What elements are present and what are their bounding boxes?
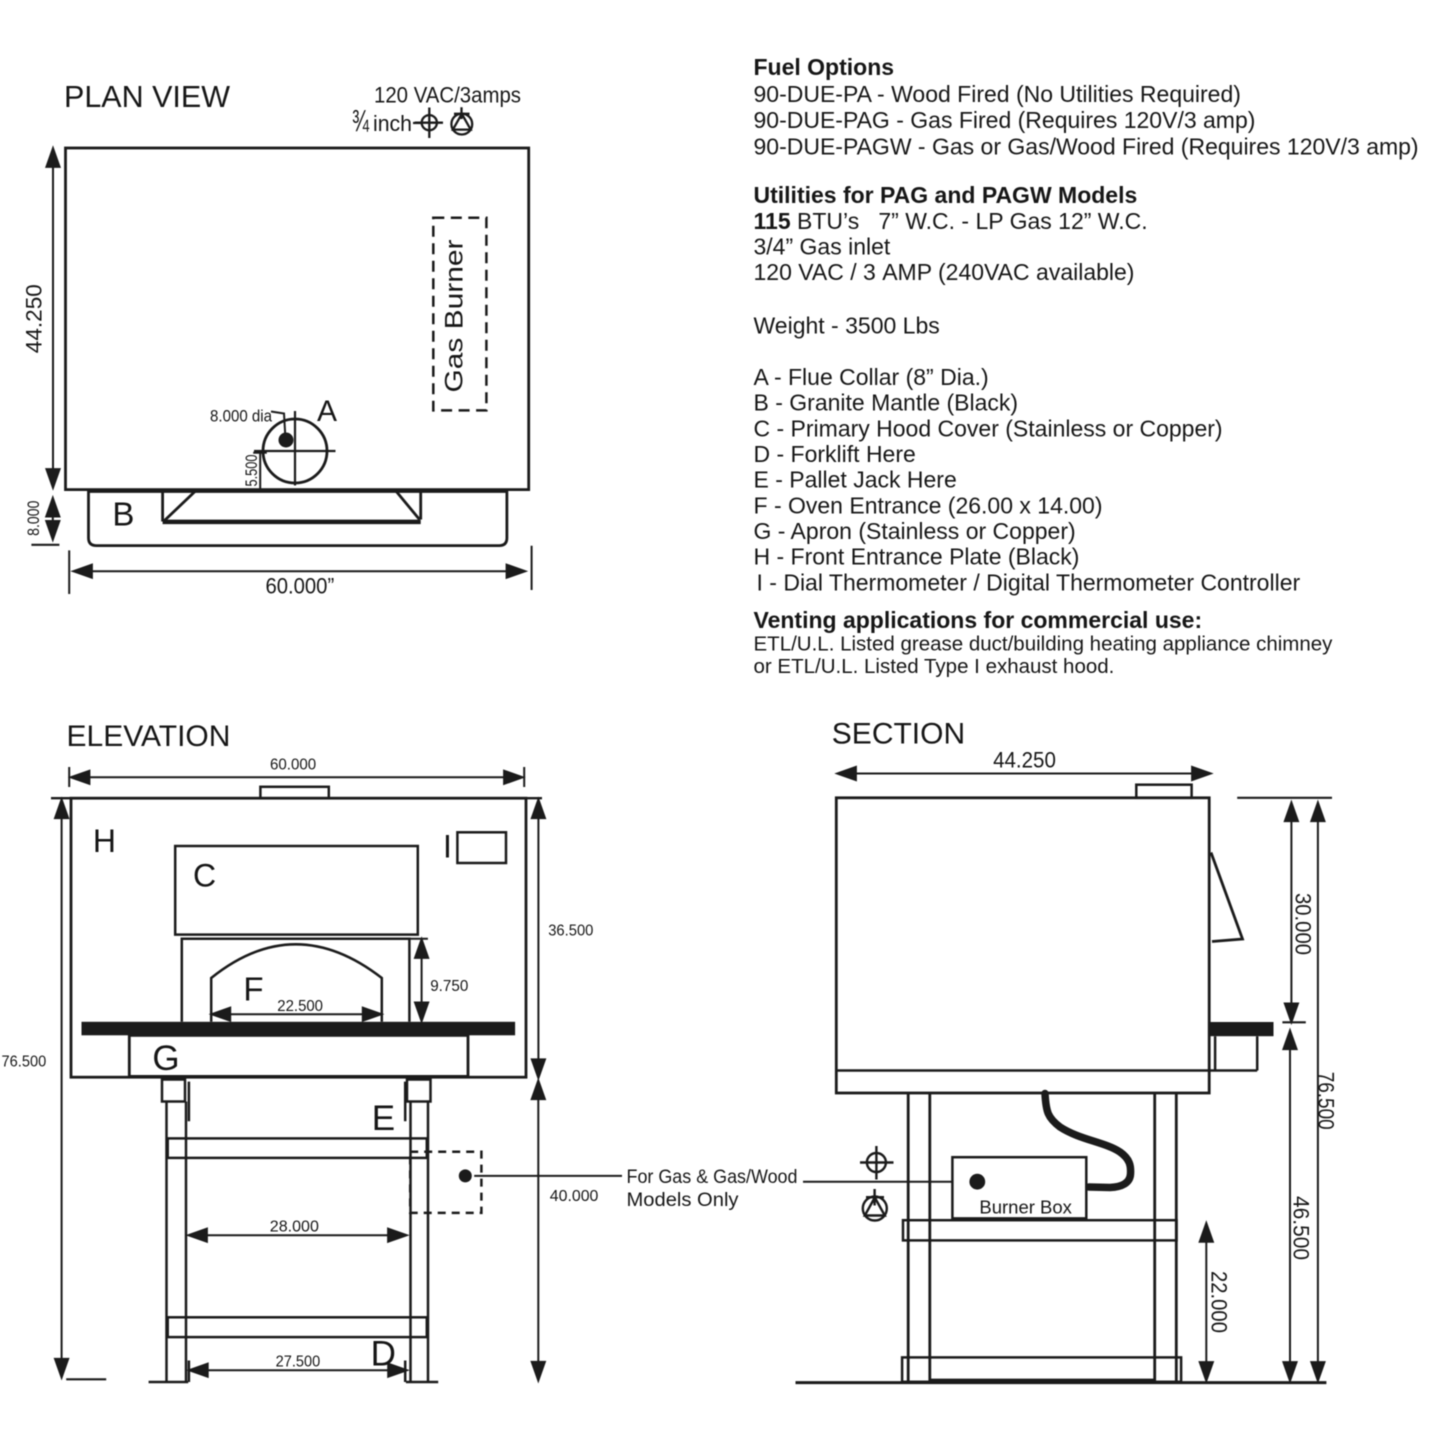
svg-text:90-DUE-PAGW - Gas or Gas/Wood: 90-DUE-PAGW - Gas or Gas/Wood Fired (Req… [754, 133, 1419, 159]
svg-text:or ETL/U.L. Listed Type I exha: or ETL/U.L. Listed Type I exhaust hood. [754, 655, 1115, 678]
svg-text:76.500: 76.500 [2, 1054, 47, 1071]
svg-text:D: D [371, 1335, 396, 1374]
svg-text:22.000: 22.000 [1207, 1271, 1232, 1333]
svg-text:3/4” Gas inlet: 3/4” Gas inlet [754, 233, 891, 259]
svg-text:Weight - 3500 Lbs: Weight - 3500 Lbs [754, 312, 940, 338]
svg-text:Models Only: Models Only [627, 1189, 739, 1211]
svg-text:44.250: 44.250 [993, 748, 1056, 773]
svg-text:Burner Box: Burner Box [979, 1197, 1072, 1218]
svg-text:46.500: 46.500 [1289, 1196, 1314, 1260]
svg-text:115 BTU’s 7” W.C. - LP Gas 1: 115 BTU’s 7” W.C. - LP Gas 12” W.C. [754, 208, 1148, 234]
svg-text:27.500: 27.500 [276, 1354, 321, 1371]
svg-text:H - Front Entrance Plate (Blac: H - Front Entrance Plate (Black) [754, 544, 1080, 570]
svg-text:H: H [93, 823, 116, 859]
svg-text:30.000: 30.000 [1291, 893, 1316, 955]
svg-text:PLAN VIEW: PLAN VIEW [64, 79, 231, 114]
svg-text:120 VAC/3amps: 120 VAC/3amps [374, 83, 521, 108]
svg-text:B - Granite Mantle (Black): B - Granite Mantle (Black) [754, 390, 1019, 416]
svg-text:8.000: 8.000 [25, 501, 43, 536]
svg-text:76.500: 76.500 [1314, 1072, 1339, 1130]
svg-text:28.000: 28.000 [270, 1219, 319, 1236]
svg-text:¾: ¾ [352, 103, 370, 138]
svg-text:F - Oven Entrance (26.00 x 14.: F - Oven Entrance (26.00 x 14.00) [754, 492, 1103, 518]
svg-text:A: A [317, 395, 337, 428]
svg-text:Venting applications for comme: Venting applications for commercial use: [754, 607, 1203, 633]
svg-text:ETL/U.L. Listed grease duct/bu: ETL/U.L. Listed grease duct/building hea… [754, 632, 1334, 655]
svg-text:G - Apron (Stainless or Copper: G - Apron (Stainless or Copper) [754, 518, 1076, 544]
svg-text:22.500: 22.500 [277, 998, 323, 1015]
svg-text:36.500: 36.500 [548, 923, 593, 940]
svg-text:8.000 dia: 8.000 dia [210, 407, 272, 426]
svg-text:inch: inch [373, 111, 412, 136]
svg-text:G: G [152, 1039, 179, 1078]
svg-text:SECTION: SECTION [832, 718, 965, 751]
svg-text:90-DUE-PA - Wood Fired (No Uti: 90-DUE-PA - Wood Fired (No Utilities Req… [754, 81, 1241, 107]
svg-text:44.250: 44.250 [21, 284, 46, 353]
svg-text:B: B [112, 496, 134, 533]
svg-text:F: F [243, 970, 263, 1007]
svg-text:A - Flue Collar (8” Dia.): A - Flue Collar (8” Dia.) [754, 364, 989, 390]
svg-text:60.000: 60.000 [270, 757, 316, 774]
svg-text:C - Primary Hood Cover (Stainl: C - Primary Hood Cover (Stainless or Cop… [754, 415, 1223, 441]
svg-text:Utilities for PAG and PAGW Mod: Utilities for PAG and PAGW Models [754, 182, 1138, 208]
svg-text:E: E [372, 1099, 395, 1138]
svg-text:C: C [193, 857, 216, 893]
svg-text:For Gas & Gas/Wood: For Gas & Gas/Wood [627, 1166, 798, 1188]
svg-text:120 VAC / 3 AMP (240VAC avail: 120 VAC / 3 AMP (240VAC available) [754, 259, 1135, 285]
svg-text:E - Pallet Jack Here: E - Pallet Jack Here [754, 467, 957, 493]
svg-text:Gas Burner: Gas Burner [441, 240, 469, 393]
svg-text:5.500: 5.500 [243, 455, 261, 487]
svg-text:40.000: 40.000 [550, 1188, 599, 1205]
svg-text:D - Forklift Here: D - Forklift Here [754, 441, 916, 467]
svg-text:I: I [443, 829, 452, 865]
svg-text:ELEVATION: ELEVATION [67, 720, 231, 753]
svg-text:90-DUE-PAG - Gas Fired (Requir: 90-DUE-PAG - Gas Fired (Requires 120V/3 … [754, 107, 1256, 133]
svg-text:9.750: 9.750 [430, 978, 468, 995]
svg-text:I - Dial Thermometer / Digita: I - Dial Thermometer / Digital Thermomet… [757, 569, 1301, 595]
svg-text:Fuel Options: Fuel Options [754, 54, 895, 80]
svg-text:60.000”: 60.000” [266, 574, 335, 599]
